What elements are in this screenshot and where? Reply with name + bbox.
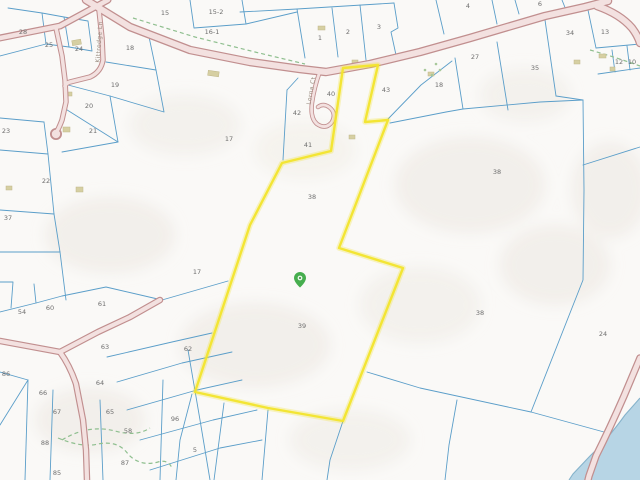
pin-dot bbox=[299, 277, 301, 279]
parcel-label: 4 bbox=[466, 2, 470, 10]
parcel-label: 38 bbox=[493, 168, 501, 176]
parcel-label: 58 bbox=[124, 427, 132, 435]
vegetation-dot bbox=[424, 69, 427, 72]
parcel-label: 86 bbox=[2, 370, 10, 378]
parcel-label: 22 bbox=[42, 177, 50, 185]
parcel-label: 54 bbox=[18, 308, 26, 316]
parcel-label: 38 bbox=[476, 309, 484, 317]
building bbox=[574, 60, 580, 64]
parcel-label: 18 bbox=[435, 81, 443, 89]
parcel-label: 21 bbox=[89, 127, 97, 135]
parcel-label: 10 bbox=[628, 58, 636, 66]
parcel-label: 23 bbox=[2, 127, 10, 135]
parcel-label: 62 bbox=[184, 345, 192, 353]
parcel-label: 37 bbox=[4, 214, 12, 222]
parcel-label: 19 bbox=[111, 81, 119, 89]
building bbox=[318, 26, 325, 30]
parcel-label: 85 bbox=[53, 469, 61, 477]
vegetation-dot bbox=[435, 63, 438, 66]
parcel-label: 28 bbox=[19, 28, 27, 36]
parcel-label: 61 bbox=[98, 300, 106, 308]
parcel-label: 17 bbox=[193, 268, 201, 276]
parcel-label: 64 bbox=[96, 379, 104, 387]
parcel-label: 18 bbox=[126, 44, 134, 52]
parcel-label: 3 bbox=[377, 23, 381, 31]
parcel-label: 16-1 bbox=[205, 28, 220, 36]
parcel-label: 12 bbox=[615, 58, 623, 66]
building bbox=[6, 186, 12, 190]
road bbox=[0, 341, 60, 352]
culdesac bbox=[52, 130, 60, 138]
map-canvas[interactable]: 1515-216-1282524181234634132735121019204… bbox=[0, 0, 640, 480]
vegetation-dot bbox=[431, 74, 434, 77]
parcel-label: 5 bbox=[193, 446, 197, 454]
parcel-label: 38 bbox=[308, 193, 316, 201]
building bbox=[349, 135, 355, 139]
parcel-label: 15-2 bbox=[209, 8, 224, 16]
parcel-label: 1 bbox=[318, 34, 322, 42]
building bbox=[610, 67, 615, 71]
parcel-label: 67 bbox=[53, 408, 61, 416]
parcel-label: 17 bbox=[225, 135, 233, 143]
parcel-label: 15 bbox=[161, 9, 169, 17]
parcel-label: 39 bbox=[298, 322, 306, 330]
vegetation-dot bbox=[439, 69, 442, 72]
parcel-label: 20 bbox=[85, 102, 93, 110]
parcel-label: 2 bbox=[346, 28, 350, 36]
parcel-label: 87 bbox=[121, 459, 129, 467]
parcel-label: 63 bbox=[101, 343, 109, 351]
parcel-label: 43 bbox=[382, 86, 390, 94]
parcel-label: 66 bbox=[39, 389, 47, 397]
parcel-label: 42 bbox=[293, 109, 301, 117]
parcel-label: 41 bbox=[304, 141, 312, 149]
road bbox=[60, 300, 160, 352]
building bbox=[63, 127, 70, 132]
building bbox=[208, 70, 220, 76]
parcel-label: 34 bbox=[566, 29, 574, 37]
building bbox=[76, 187, 83, 192]
parcel-label: 24 bbox=[599, 330, 607, 338]
terrain-layer bbox=[35, 69, 640, 470]
parcel-label: 96 bbox=[171, 415, 179, 423]
parcel-label: 88 bbox=[41, 439, 49, 447]
location-marker[interactable] bbox=[294, 272, 306, 288]
parcel-label: 35 bbox=[531, 64, 539, 72]
parcel-label: 65 bbox=[106, 408, 114, 416]
parcel-label: 60 bbox=[46, 304, 54, 312]
parcel-label: 40 bbox=[327, 90, 335, 98]
parcel-label: 27 bbox=[471, 53, 479, 61]
parcel-label: 25 bbox=[45, 41, 53, 49]
parcel-label: 13 bbox=[601, 28, 609, 36]
building bbox=[599, 54, 606, 58]
parcel-label: 24 bbox=[75, 45, 83, 53]
parcel-label: 6 bbox=[538, 0, 542, 8]
